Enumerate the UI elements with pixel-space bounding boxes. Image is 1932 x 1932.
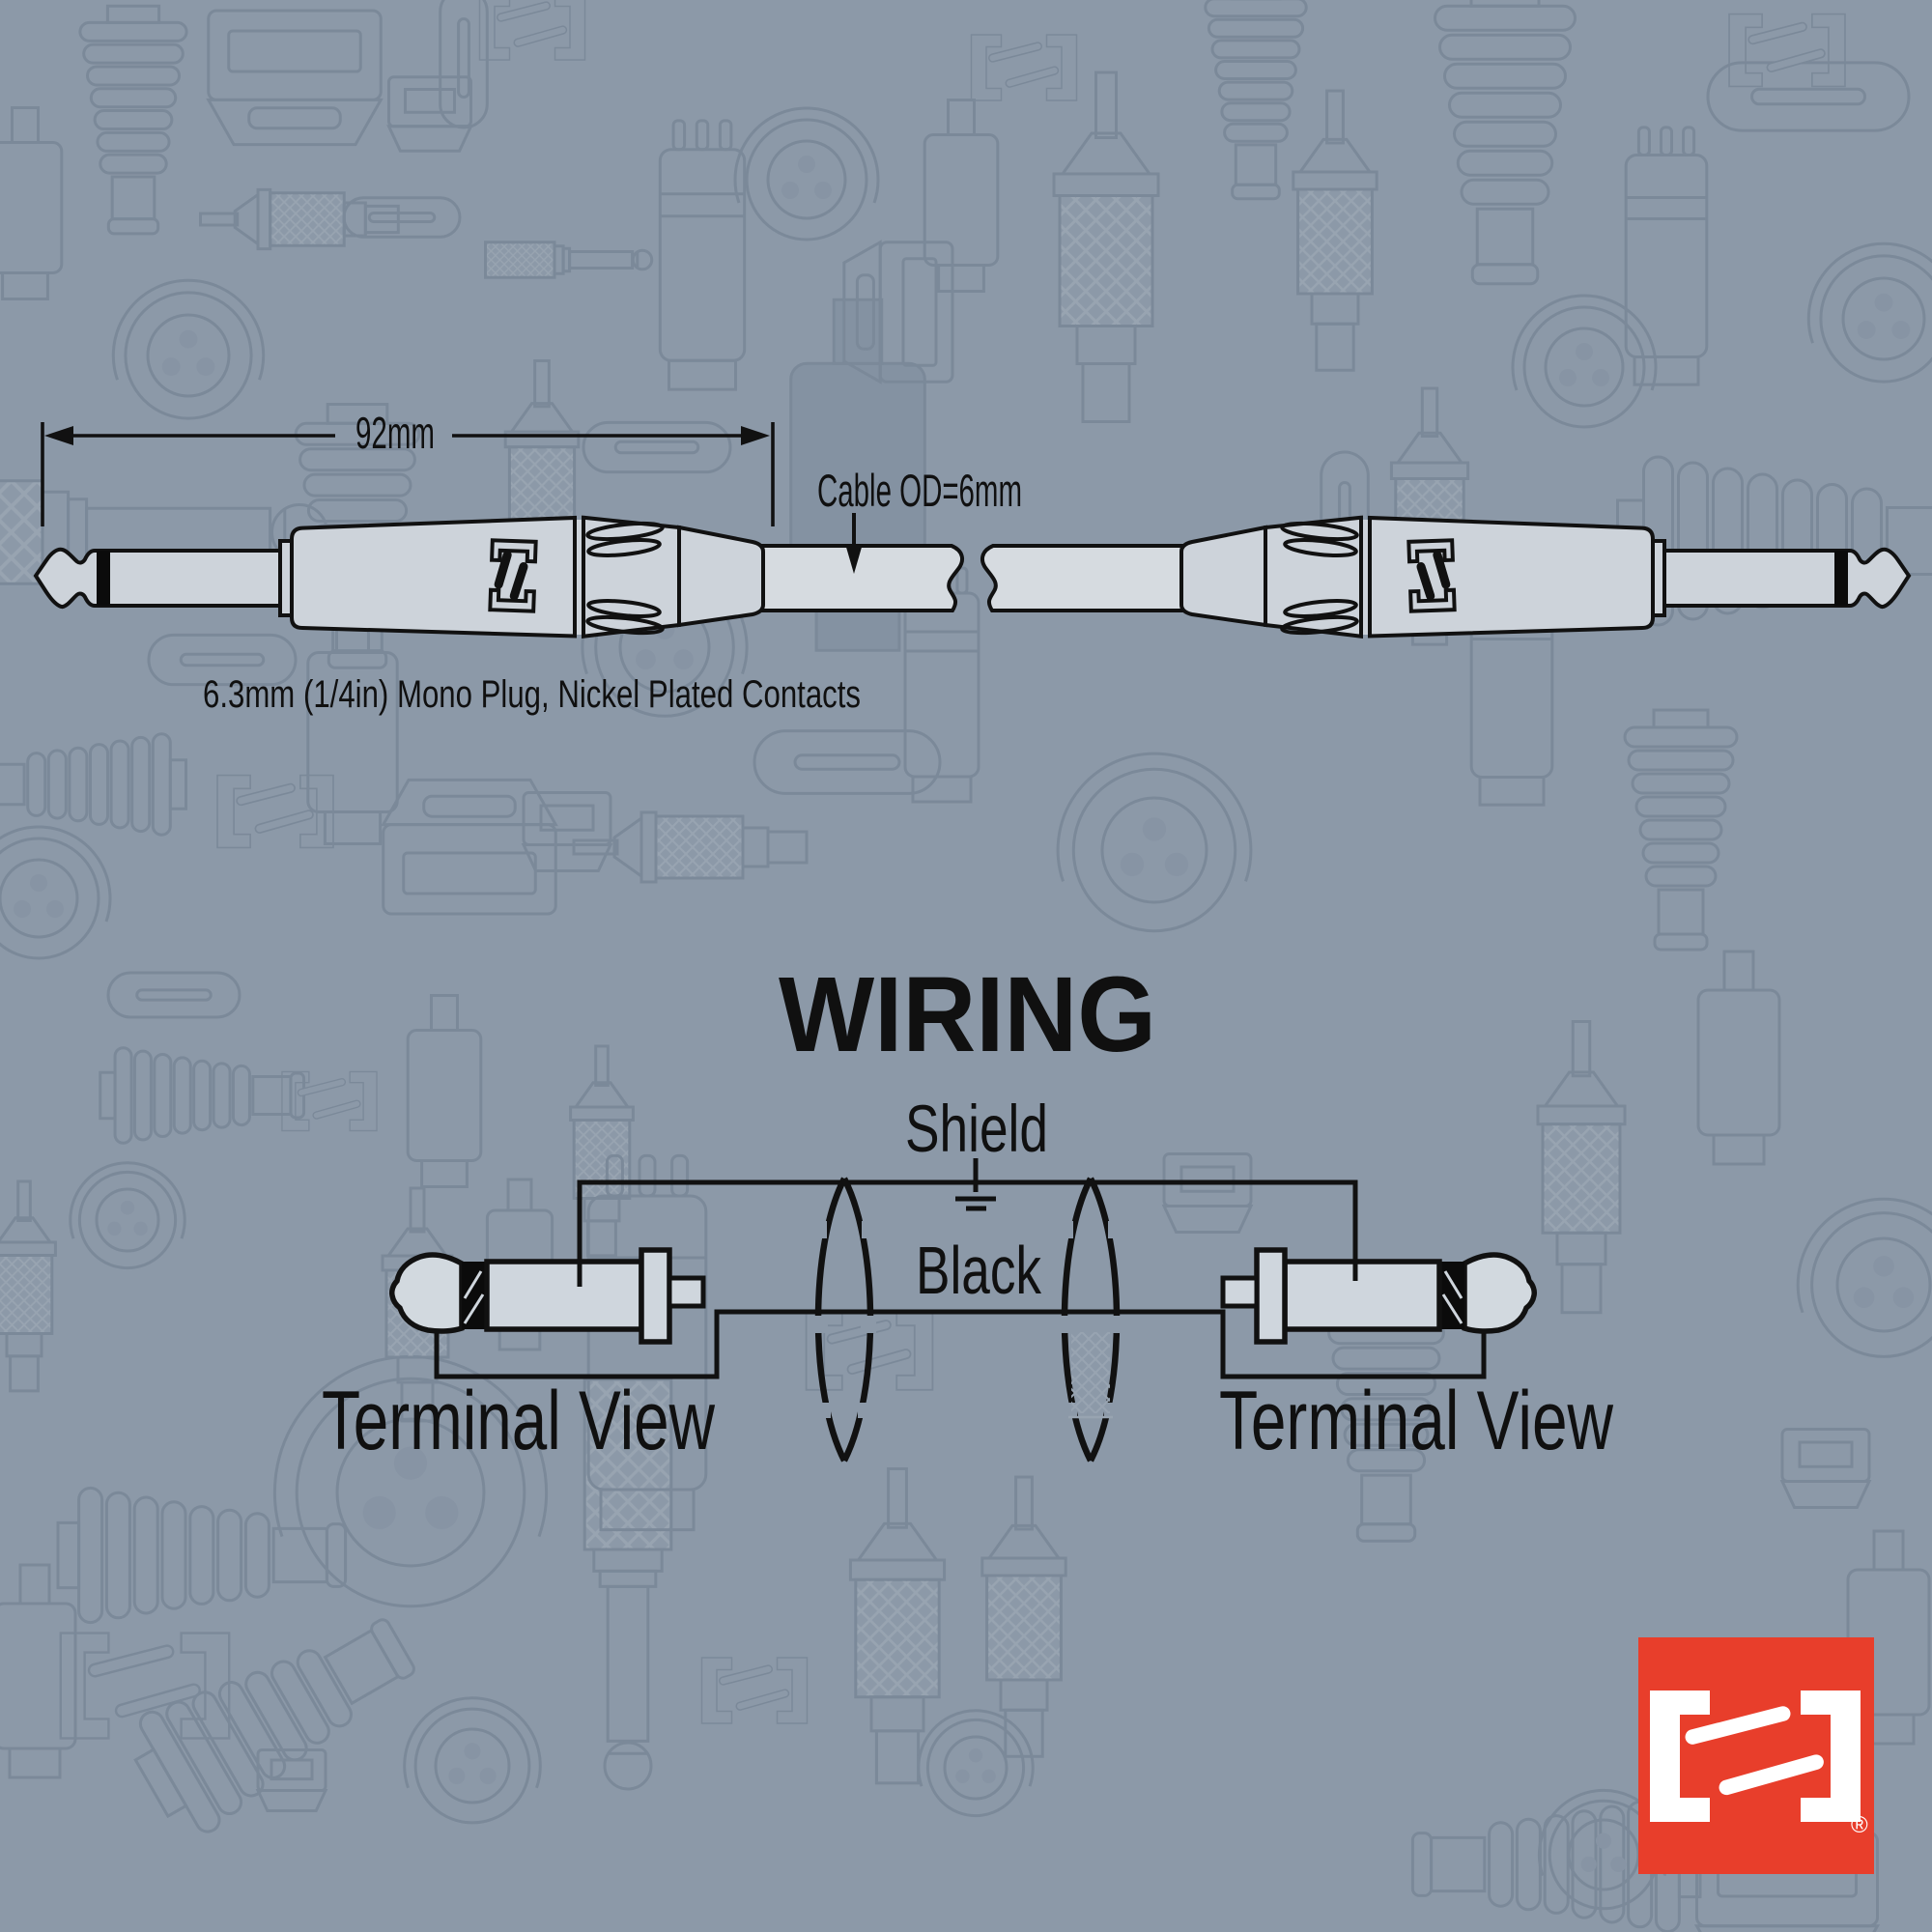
svg-text:WIRING: WIRING — [779, 955, 1156, 1074]
svg-text:92mm: 92mm — [355, 408, 435, 458]
svg-text:6.3mm (1/4in) Mono Plug, Nicke: 6.3mm (1/4in) Mono Plug, Nickel Plated C… — [203, 673, 861, 716]
svg-text:®: ® — [1851, 1812, 1868, 1838]
svg-text:Shield: Shield — [905, 1092, 1048, 1166]
svg-text:Black: Black — [916, 1233, 1042, 1308]
svg-text:Terminal View: Terminal View — [1219, 1375, 1614, 1467]
svg-text:Terminal View: Terminal View — [322, 1375, 716, 1467]
svg-text:Cable OD=6mm: Cable OD=6mm — [817, 465, 1022, 516]
